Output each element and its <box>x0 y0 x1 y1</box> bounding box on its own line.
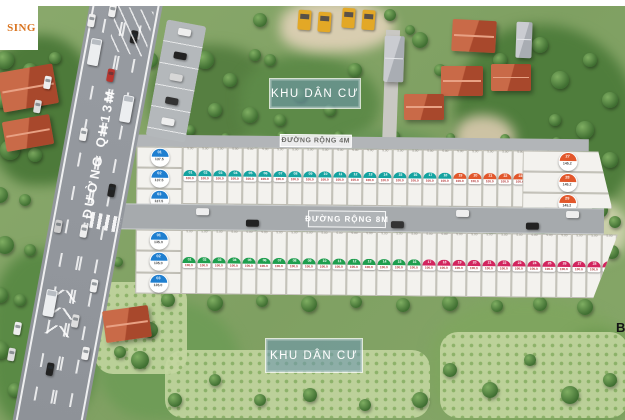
excavator <box>341 8 355 29</box>
lot-frontage-dimension: 5.00 <box>337 149 343 152</box>
tree <box>482 382 498 398</box>
corner-lot: 27145.2 <box>522 151 612 173</box>
car <box>79 127 88 141</box>
lot-frontage-dimension: 5.00 <box>306 231 312 234</box>
lot-badge: 14100.0 <box>377 259 390 270</box>
lot-frontage-dimension: 5.00 <box>411 232 417 235</box>
lot: 5.0006100.0 <box>257 148 273 205</box>
tree <box>19 194 31 206</box>
corner-lot-badge: 02137.5 <box>150 169 169 188</box>
lower-lot-row: 5.0001100.05.0002100.05.0003100.05.00041… <box>181 230 618 299</box>
corner-lot-badge: 03135.0 <box>149 273 168 292</box>
tree <box>114 346 126 358</box>
car <box>89 279 98 293</box>
lot: 5.0029100.0 <box>601 234 617 298</box>
tree <box>384 9 396 21</box>
parked-car <box>173 51 187 60</box>
parked-car <box>165 96 179 105</box>
car <box>81 346 90 360</box>
lot-frontage-dimension: 5.00 <box>381 232 387 235</box>
lot-badge: 18100.0 <box>438 173 451 184</box>
lot-badge: 16100.0 <box>408 172 421 183</box>
house <box>515 22 532 59</box>
lot: 5.0002100.0 <box>196 230 212 294</box>
lot: 5.0007100.0 <box>271 231 287 295</box>
lot-badge: 28100.0 <box>587 261 600 272</box>
tree <box>583 53 597 67</box>
lot-badge: 16100.0 <box>407 259 420 270</box>
lot-frontage-dimension: 5.00 <box>606 234 612 237</box>
orchard-field <box>440 332 625 418</box>
lot-frontage-dimension: 5.00 <box>561 234 567 237</box>
lot: 5.0007100.0 <box>272 148 288 205</box>
lot-frontage-dimension: 5.00 <box>486 233 492 236</box>
lot: 5.0021100.0 <box>482 150 498 207</box>
lot-badge: 15100.0 <box>393 172 406 183</box>
tree <box>274 114 286 126</box>
lot-frontage-dimension: 5.00 <box>352 149 358 152</box>
tree <box>209 374 221 386</box>
lot: 5.0028100.0 <box>586 234 602 298</box>
lot-frontage-dimension: 5.00 <box>262 148 268 151</box>
car <box>526 223 539 230</box>
lot-badge: 29100.0 <box>602 261 615 272</box>
excavator <box>361 10 375 31</box>
lot: 5.0021100.0 <box>481 233 497 297</box>
lot-badge: 21100.0 <box>483 173 496 184</box>
lot-frontage-dimension: 5.00 <box>247 148 253 151</box>
lot: 5.0017100.0 <box>422 149 438 206</box>
lot-frontage-dimension: 5.00 <box>426 233 432 236</box>
lot: 5.0022100.0 <box>497 150 513 207</box>
lot-frontage-dimension: 5.00 <box>501 233 507 236</box>
house <box>102 305 152 343</box>
lot-frontage-dimension: 5.00 <box>186 230 192 233</box>
tree <box>28 148 42 162</box>
lot-badge: 20100.0 <box>468 173 481 184</box>
lot-badge: 05100.0 <box>242 257 255 268</box>
lot-frontage-dimension: 5.00 <box>457 150 463 153</box>
corner-lot: 01135.0 <box>136 229 182 251</box>
lot-badge: 03100.0 <box>213 170 226 181</box>
residential-area-label-top: KHU DÂN CƯ <box>270 79 360 108</box>
lot-badge: 21100.0 <box>482 260 495 271</box>
lot-badge: 07100.0 <box>273 171 286 182</box>
lot-badge: 20100.0 <box>467 259 480 270</box>
upper-lot-block: 01137.502137.503137.5 5.0001100.05.00021… <box>136 146 619 208</box>
residential-area-label-bottom: KHU DÂN CƯ <box>266 339 362 372</box>
lot-badge: 15100.0 <box>392 259 405 270</box>
lot: 5.0019100.0 <box>451 233 467 297</box>
tree <box>359 399 371 411</box>
tree <box>303 388 317 402</box>
watermark-text: SING <box>7 22 38 34</box>
car <box>196 208 209 215</box>
tree <box>14 294 26 306</box>
lot-frontage-dimension: 5.00 <box>216 230 222 233</box>
tree <box>549 114 561 126</box>
lot-frontage-dimension: 5.00 <box>442 150 448 153</box>
excavator <box>297 10 311 31</box>
corner-lot-badge: 27145.2 <box>558 152 577 171</box>
road-4m-label: ĐƯỜNG RỘNG 4M <box>280 134 352 148</box>
lot: 5.0016100.0 <box>406 232 422 296</box>
lot-badge: 27100.0 <box>572 261 585 272</box>
car <box>456 210 469 217</box>
lot: 5.0018100.0 <box>437 150 453 207</box>
lot-frontage-dimension: 5.00 <box>261 231 267 234</box>
lot: 5.0014100.0 <box>377 149 393 206</box>
lot-badge: 05100.0 <box>243 171 256 182</box>
lot: 5.0010100.0 <box>317 148 333 205</box>
lot-frontage-dimension: 5.00 <box>472 150 478 153</box>
corner-lot: 01137.5 <box>137 146 183 167</box>
lot: 5.0012100.0 <box>346 232 362 296</box>
lot-frontage-dimension: 5.00 <box>471 233 477 236</box>
lower-left-corner-lots: 01135.002135.003135.0 <box>135 229 182 293</box>
lot: 5.0013100.0 <box>361 232 377 296</box>
lot-frontage-dimension: 5.00 <box>276 231 282 234</box>
truck <box>119 95 135 124</box>
lot-badge: 14100.0 <box>378 172 391 183</box>
lot-badge: 01100.0 <box>182 256 195 267</box>
parked-car <box>178 28 192 37</box>
tree <box>208 103 222 117</box>
lot-frontage-dimension: 5.00 <box>291 231 297 234</box>
lot-badge: 07100.0 <box>272 257 285 268</box>
lot-frontage-dimension: 5.00 <box>366 232 372 235</box>
lot: 5.0016100.0 <box>407 149 423 206</box>
lot-frontage-dimension: 5.00 <box>591 234 597 237</box>
corner-lot: 03135.0 <box>135 272 181 294</box>
lot: 5.0002100.0 <box>197 147 213 204</box>
lot-frontage-dimension: 5.00 <box>382 149 388 152</box>
tree <box>561 386 579 404</box>
lot-badge: 08100.0 <box>287 258 300 269</box>
tree <box>131 351 149 369</box>
tree <box>223 73 237 87</box>
lot-frontage-dimension: 5.00 <box>202 147 208 150</box>
lot: 5.0015100.0 <box>391 232 407 296</box>
lot-badge: 06100.0 <box>258 171 271 182</box>
lot-badge: 09100.0 <box>302 258 315 269</box>
lot-badge: 02100.0 <box>198 170 211 181</box>
tree <box>242 107 258 123</box>
upper-right-corner-lots: 27145.228145.229145.2 <box>522 151 613 209</box>
map-corner-letter: B <box>616 320 625 335</box>
lot-frontage-dimension: 5.00 <box>456 233 462 236</box>
corner-lot: 02135.0 <box>135 251 181 273</box>
tree <box>412 392 428 408</box>
house <box>441 66 483 96</box>
lot-frontage-dimension: 5.00 <box>322 148 328 151</box>
lot-frontage-dimension: 5.00 <box>397 149 403 152</box>
corner-lot-badge: 28145.2 <box>558 173 577 192</box>
tree <box>532 37 548 53</box>
lot-badge: 18100.0 <box>437 259 450 270</box>
lot-frontage-dimension: 5.00 <box>412 149 418 152</box>
tree <box>24 244 36 256</box>
lot: 5.0001100.0 <box>181 230 197 294</box>
lot: 5.0003100.0 <box>212 147 228 204</box>
lot-frontage-dimension: 5.00 <box>531 234 537 237</box>
lot-frontage-dimension: 5.00 <box>516 233 522 236</box>
lot-badge: 24100.0 <box>527 260 540 271</box>
tree <box>0 236 14 254</box>
lower-lot-block: 01135.002135.003135.0 5.0001100.05.00021… <box>135 229 618 298</box>
lot: 5.0011100.0 <box>332 149 348 206</box>
truck <box>87 38 103 67</box>
lot: 5.0004100.0 <box>226 230 242 294</box>
lot: 5.0026100.0 <box>556 234 572 298</box>
lot-badge: 30158.5 <box>617 261 625 272</box>
lot-frontage-dimension: 5.00 <box>502 150 508 153</box>
lot-badge: 22100.0 <box>498 173 511 184</box>
lot: 5.0012100.0 <box>347 149 363 206</box>
lot: 5.0011100.0 <box>331 232 347 296</box>
lot-frontage-dimension: 5.00 <box>576 234 582 237</box>
tree <box>253 13 267 27</box>
tree <box>551 71 569 89</box>
top-border <box>0 0 625 6</box>
house <box>451 19 497 53</box>
excavator <box>317 12 331 33</box>
lot-frontage-dimension: 5.00 <box>367 149 373 152</box>
lot-frontage-dimension: 5.00 <box>546 234 552 237</box>
lot: 5.0004100.0 <box>227 147 243 204</box>
lot-badge: 25100.0 <box>542 260 555 271</box>
lot-frontage-dimension: 5.00 <box>307 148 313 151</box>
lot: 5.0008100.0 <box>286 231 302 295</box>
upper-lot-row: 5.0001100.05.0002100.05.0003100.05.00041… <box>182 147 523 208</box>
corner-lot: 02137.5 <box>136 167 182 188</box>
lot: 5.0025100.0 <box>541 234 557 298</box>
car <box>391 221 404 228</box>
lot-frontage-dimension: 5.00 <box>187 147 193 150</box>
tree <box>249 49 261 61</box>
lot: 5.0020100.0 <box>467 150 483 207</box>
lot-badge: 04100.0 <box>228 170 241 181</box>
corner-lot-badge: 01135.0 <box>149 231 168 250</box>
lot: 5.0009100.0 <box>301 231 317 295</box>
tree <box>524 354 536 366</box>
house <box>491 64 531 91</box>
lot: 5.0003100.0 <box>211 230 227 294</box>
lot-frontage-dimension: 5.00 <box>232 147 238 150</box>
tree <box>348 63 362 77</box>
tree <box>49 52 61 64</box>
lot-badge: 17100.0 <box>423 172 436 183</box>
lot-badge: 09100.0 <box>303 171 316 182</box>
tree <box>254 394 266 406</box>
lot: 5.0005100.0 <box>241 231 257 295</box>
lot: 5.0027100.0 <box>571 234 587 298</box>
lot-badge: 19100.0 <box>453 173 466 184</box>
lot: 5.0005100.0 <box>242 148 258 205</box>
lot-frontage-dimension: 5.00 <box>217 147 223 150</box>
lot-frontage-dimension: 5.00 <box>336 232 342 235</box>
lot-badge: 03100.0 <box>212 257 225 268</box>
lot-frontage-dimension: 5.00 <box>231 230 237 233</box>
lot: 5.0009100.0 <box>302 148 318 205</box>
car <box>246 220 259 227</box>
lot-frontage-dimension: 5.00 <box>487 150 493 153</box>
car <box>107 183 116 197</box>
lot-badge: 12100.0 <box>347 258 360 269</box>
lot: 5.0022100.0 <box>496 233 512 297</box>
masterplan-scene: ĐƯỜNG QH13M ĐƯỜNG RỘNG 4M 01137.502137.5… <box>0 0 625 420</box>
tree <box>412 32 428 48</box>
lot: 5.0013100.0 <box>362 149 378 206</box>
lot-badge: 13100.0 <box>363 172 376 183</box>
lot-badge: 22100.0 <box>497 260 510 271</box>
lot-frontage-dimension: 5.00 <box>292 148 298 151</box>
lot: 5.0024100.0 <box>526 234 542 298</box>
lot-frontage-dimension: 5.00 <box>246 231 252 234</box>
lot-frontage-dimension: 5.00 <box>441 233 447 236</box>
lot-badge: 04100.0 <box>227 257 240 268</box>
lot-badge: 10100.0 <box>318 171 331 182</box>
parked-car <box>161 117 175 126</box>
tree <box>443 363 457 377</box>
lot-badge: 08100.0 <box>288 171 301 182</box>
car <box>45 362 54 376</box>
lot-badge: 17100.0 <box>422 259 435 270</box>
lot-frontage-dimension: 5.00 <box>201 230 207 233</box>
lot: 5.0023100.0 <box>511 233 527 297</box>
tree <box>264 54 276 66</box>
lot-badge: 02100.0 <box>197 257 210 268</box>
upper-left-corner-lots: 01137.502137.503137.5 <box>136 146 183 203</box>
tree <box>0 187 8 203</box>
lot: 5.0001100.0 <box>182 147 198 204</box>
lot-badge: 11100.0 <box>333 172 346 183</box>
tree <box>603 373 617 387</box>
lot-frontage-dimension: 5.00 <box>321 231 327 234</box>
lot-badge: 10100.0 <box>317 258 330 269</box>
lot-badge: 12100.0 <box>348 172 361 183</box>
lot-badge: 26100.0 <box>557 260 570 271</box>
watermark-logo: SING <box>0 6 38 50</box>
car <box>54 219 63 233</box>
lot-badge: 23100.0 <box>512 260 525 271</box>
lot: 5.0019100.0 <box>452 150 468 207</box>
car <box>71 314 80 328</box>
corner-lot-badge: 01137.5 <box>150 148 169 167</box>
lot: 5.0018100.0 <box>436 233 452 297</box>
corner-lot-badge: 02135.0 <box>149 252 168 271</box>
lot: 5.0008100.0 <box>287 148 303 205</box>
lot: 5.0006100.0 <box>256 231 272 295</box>
lot: 5.0015100.0 <box>392 149 408 206</box>
lot-badge: 13100.0 <box>362 258 375 269</box>
house <box>404 94 444 120</box>
lot: 5.0014100.0 <box>376 232 392 296</box>
house <box>383 36 405 83</box>
lot-frontage-dimension: 5.00 <box>351 232 357 235</box>
lot-badge: 11100.0 <box>332 258 345 269</box>
parked-car <box>169 73 183 82</box>
lot-badge: 06100.0 <box>257 257 270 268</box>
lot: 5.0010100.0 <box>316 231 332 295</box>
lot-frontage-dimension: 5.00 <box>517 150 523 153</box>
lot: 5.0017100.0 <box>421 232 437 296</box>
road-8m-label: ĐƯỜNG RỘNG 8M <box>308 210 386 228</box>
lot: 5.0020100.0 <box>466 233 482 297</box>
car <box>566 211 579 218</box>
lot-badge: 19100.0 <box>452 259 465 270</box>
lot-badge: 01100.0 <box>183 170 196 181</box>
lot-frontage-dimension: 5.00 <box>396 232 402 235</box>
lot-frontage-dimension: 5.00 <box>427 150 433 153</box>
tree <box>168 393 182 407</box>
tree <box>602 92 618 108</box>
subdivision-blocks: ĐƯỜNG RỘNG 4M 01137.502137.503137.5 5.00… <box>135 132 619 303</box>
lot-frontage-dimension: 5.00 <box>277 148 283 151</box>
corner-lot: 28145.2 <box>522 172 612 194</box>
